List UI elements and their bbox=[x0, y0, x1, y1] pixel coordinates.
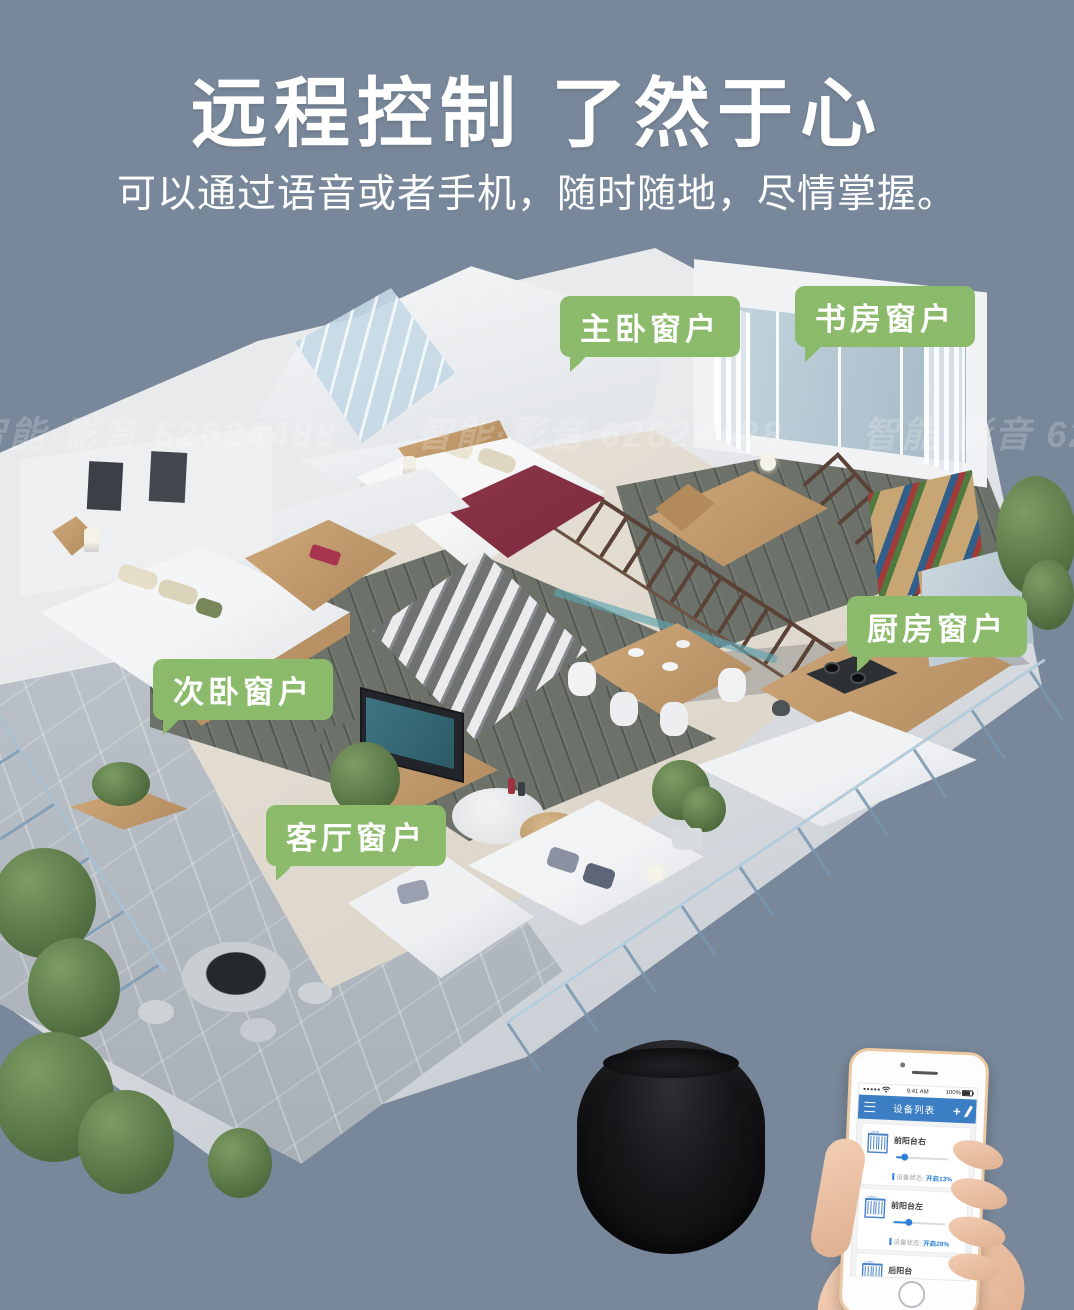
dining-plate-1 bbox=[628, 648, 644, 657]
device-name: 前阳台左 bbox=[891, 1200, 925, 1212]
status-prefix: 设备状态: bbox=[896, 1171, 924, 1182]
status-prefix: 设备状态: bbox=[893, 1236, 921, 1247]
battery-percent: 100% bbox=[945, 1090, 961, 1097]
status-value: 开启28% bbox=[923, 1237, 949, 1248]
label-second-bedroom-window: 次卧窗户 bbox=[153, 659, 333, 720]
second-lamp bbox=[84, 528, 99, 552]
living-plant-2 bbox=[682, 786, 726, 832]
add-device-icon[interactable]: + bbox=[953, 1104, 961, 1117]
fire-pit bbox=[182, 942, 290, 1012]
svg-text:curtain: curtain bbox=[867, 1194, 877, 1198]
curtain-icon: curtain bbox=[861, 1259, 884, 1282]
bottle-red bbox=[508, 778, 515, 794]
battery-icon bbox=[962, 1090, 973, 1096]
device-slider[interactable] bbox=[896, 1156, 948, 1160]
dining-chair-3 bbox=[660, 702, 688, 736]
device-row[interactable]: curtain 前阳台右 设备状态:开启13% bbox=[860, 1124, 971, 1189]
terrace-plant-2 bbox=[28, 938, 120, 1038]
poster-canvas: 远程控制 了然于心 可以通过语音或者手机，随时随地，尽情掌握。 bbox=[0, 0, 1074, 1310]
stool-1 bbox=[138, 1000, 174, 1024]
status-accent-bar bbox=[892, 1173, 894, 1180]
dining-plate-2 bbox=[662, 662, 678, 671]
smart-speaker bbox=[577, 1040, 765, 1254]
label-kitchen-window: 厨房窗户 bbox=[847, 596, 1027, 657]
menu-icon[interactable] bbox=[864, 1102, 875, 1112]
label-living-room-window: 客厅窗户 bbox=[266, 805, 446, 866]
device-status: 设备状态:开启28% bbox=[889, 1236, 960, 1249]
slider-handle[interactable] bbox=[905, 1219, 912, 1226]
label-study-window: 书房窗户 bbox=[795, 286, 975, 347]
stool-3 bbox=[298, 982, 332, 1004]
wall-frame-1 bbox=[87, 461, 123, 511]
device-slider[interactable] bbox=[893, 1221, 945, 1225]
floor-lamp bbox=[648, 866, 663, 881]
app-title: 设备列表 bbox=[893, 1101, 936, 1117]
phone-camera-dot bbox=[900, 1062, 905, 1067]
svg-text:curtain: curtain bbox=[864, 1259, 874, 1263]
burner-1 bbox=[826, 664, 838, 672]
status-value: 开启13% bbox=[926, 1173, 952, 1184]
status-time: 9:41 AM bbox=[907, 1088, 929, 1095]
stool-2 bbox=[240, 1018, 276, 1042]
balcony-plant-right-2 bbox=[1022, 560, 1074, 630]
watermark-text: 智能·影音 62624488 智能·影音 62624488 智能·影音 6262… bbox=[0, 406, 1074, 458]
dining-chair-2 bbox=[610, 692, 638, 726]
terrace-plant-4 bbox=[78, 1090, 174, 1194]
bottle-dark bbox=[518, 782, 525, 796]
slider-handle[interactable] bbox=[901, 1154, 908, 1161]
dining-plate-3 bbox=[676, 640, 690, 648]
carrier-signal-dots: ●●●●● bbox=[863, 1086, 881, 1093]
terrace-plant-5 bbox=[208, 1128, 272, 1198]
edit-icon[interactable] bbox=[965, 1105, 973, 1117]
curtain-icon: curtain bbox=[863, 1194, 886, 1221]
home-button[interactable] bbox=[897, 1280, 925, 1308]
living-plant-pot bbox=[672, 828, 702, 850]
device-name: 前阳台右 bbox=[894, 1135, 928, 1147]
label-master-bedroom-window: 主卧窗户 bbox=[560, 296, 740, 357]
status-accent-bar bbox=[889, 1237, 891, 1244]
kettle bbox=[772, 700, 790, 716]
dining-chair-1 bbox=[568, 662, 596, 696]
svg-text:curtain: curtain bbox=[870, 1129, 880, 1133]
burner-2 bbox=[852, 674, 864, 682]
dining-chair-4 bbox=[718, 668, 746, 702]
curtain-icon: curtain bbox=[866, 1129, 889, 1156]
phone-earpiece bbox=[912, 1071, 938, 1075]
planter-plant bbox=[92, 762, 150, 806]
wifi-icon bbox=[882, 1087, 890, 1093]
wall-frame-2 bbox=[149, 451, 188, 503]
device-name: 后阳台 bbox=[888, 1265, 922, 1277]
